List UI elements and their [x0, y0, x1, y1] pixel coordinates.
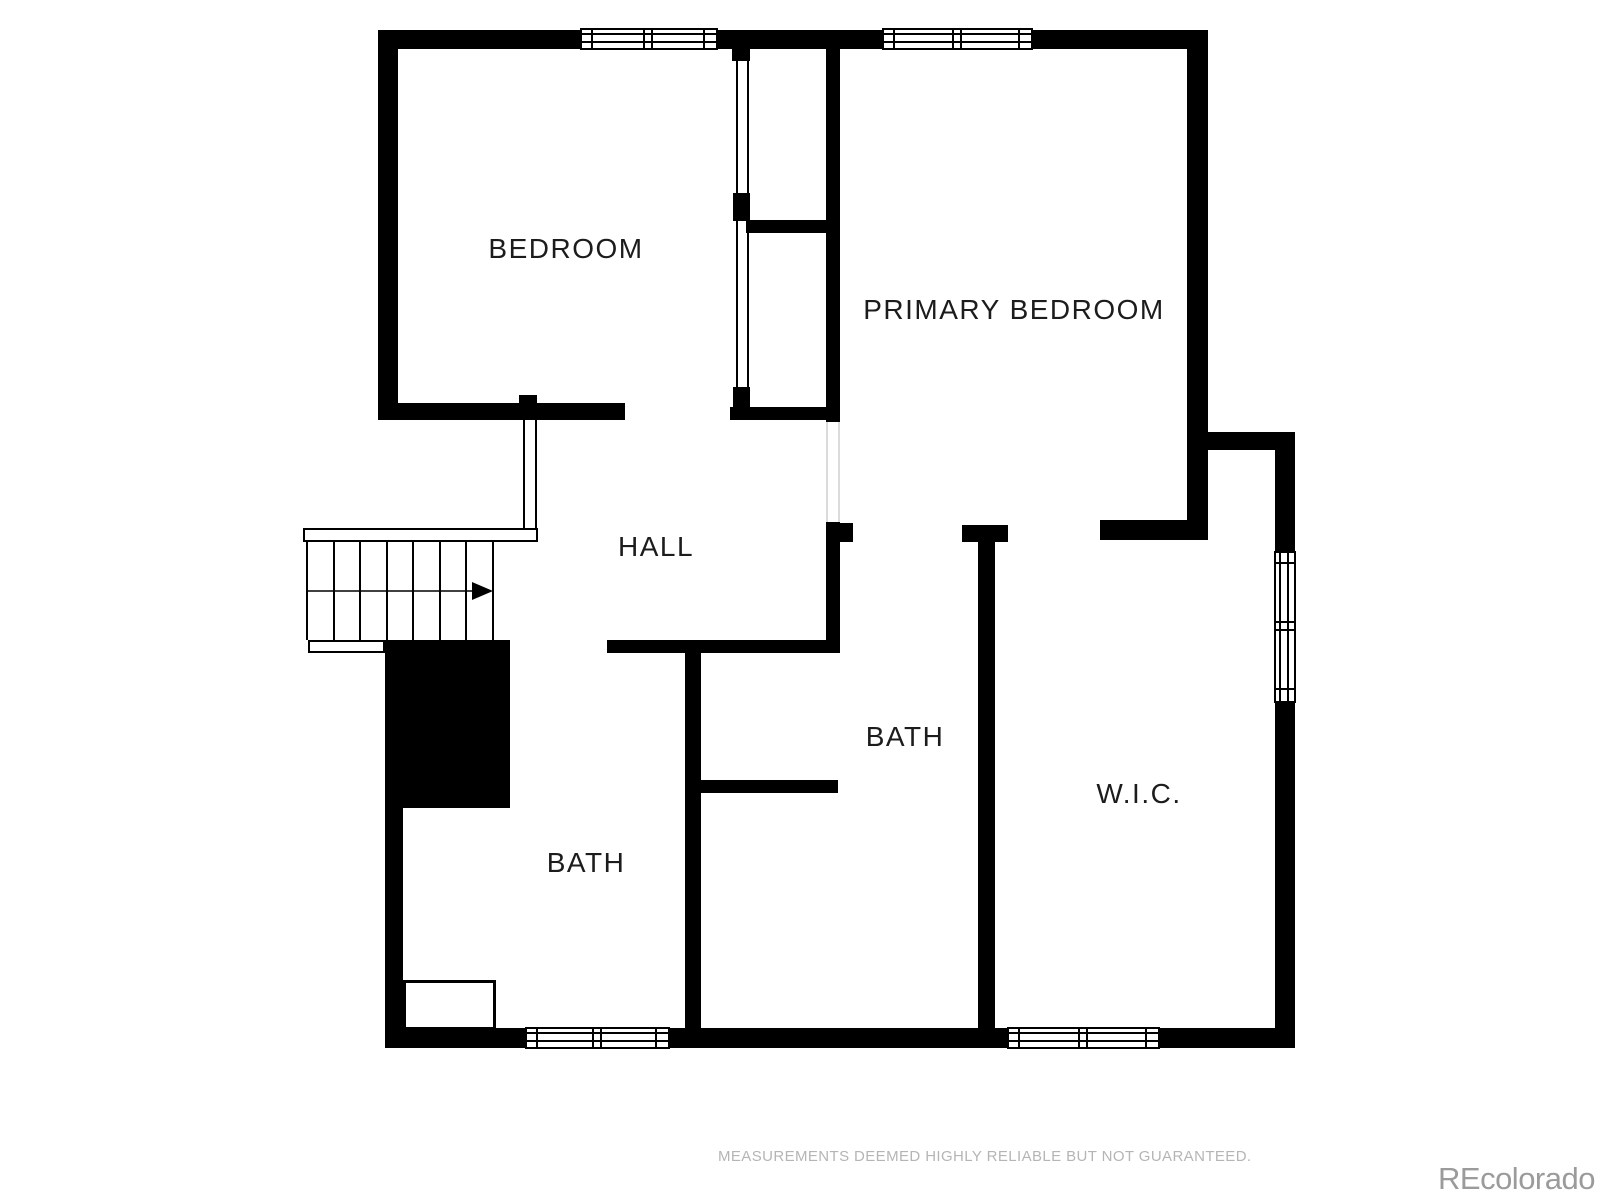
wall-closet-tab-mid — [733, 193, 750, 221]
wall-closet-tab-low — [733, 387, 750, 408]
room-label-hall: HALL — [618, 531, 694, 563]
wall-bath-right — [978, 542, 995, 1048]
wall-bath-stub — [701, 780, 838, 793]
wall-bath-divider — [685, 640, 701, 1048]
stair-railing-bottom — [308, 640, 385, 653]
window-wic-bottom — [1007, 1027, 1160, 1049]
wall-bedroom-bottom — [378, 403, 625, 420]
room-label-bedroom: BEDROOM — [488, 233, 643, 265]
wall-primary-left — [826, 47, 840, 422]
wall-left — [378, 30, 398, 420]
room-label-bath-left: BATH — [547, 847, 626, 879]
wall-bedroom-tab — [519, 395, 537, 404]
stair-treads — [307, 542, 493, 640]
wall-hall-right — [826, 522, 840, 653]
wall-closet-low — [730, 407, 840, 420]
stairs-direction-arrow-icon — [472, 582, 493, 600]
room-label-primary-bedroom: PRIMARY BEDROOM — [863, 294, 1165, 326]
stair-railing-top — [303, 528, 538, 542]
wall-closet-tab-top — [732, 49, 750, 61]
wall-right-lower — [1275, 450, 1295, 1048]
primary-bedroom-door-opening — [827, 422, 839, 522]
closet-partition-lines — [524, 49, 748, 536]
wall-right-upper — [1187, 30, 1208, 540]
stair-chase-solid — [385, 640, 510, 808]
wall-closet-mid — [746, 220, 838, 233]
watermark-recolorado: REcolorado — [1438, 1161, 1595, 1197]
thin-linework — [0, 0, 1600, 1200]
window-bath-bottom — [525, 1027, 670, 1049]
bath-fixture-outline — [403, 980, 496, 1030]
window-wic-right — [1274, 551, 1296, 703]
room-label-bath-middle: BATH — [866, 721, 945, 753]
wall-right-jog — [1208, 432, 1295, 450]
wall-hall-bottom — [607, 640, 840, 653]
room-label-wic: W.I.C. — [1096, 778, 1181, 810]
disclaimer-text: MEASUREMENTS DEEMED HIGHLY RELIABLE BUT … — [718, 1148, 1252, 1165]
wall-hall-right-tab — [840, 523, 853, 542]
wall-bath-tcap — [962, 525, 1008, 542]
wall-bath-left — [385, 640, 403, 1048]
wall-top — [378, 30, 1208, 49]
window-bedroom-top — [580, 28, 718, 50]
floor-plan-canvas: BEDROOM PRIMARY BEDROOM HALL BATH BATH W… — [0, 0, 1600, 1200]
window-primary-bedroom-top — [882, 28, 1033, 50]
